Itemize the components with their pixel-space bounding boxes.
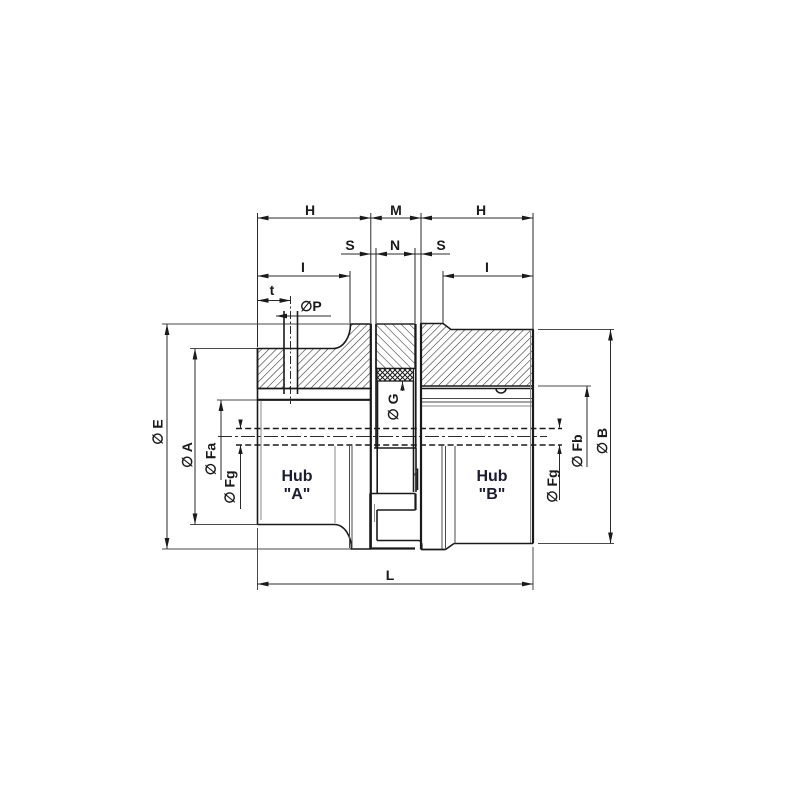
svg-text:Hub: Hub [476, 468, 507, 485]
svg-text:∅ Fg: ∅ Fg [222, 470, 238, 503]
svg-text:L: L [386, 567, 395, 583]
svg-text:"B": "B" [479, 486, 506, 503]
svg-text:∅ Fg: ∅ Fg [544, 469, 560, 502]
svg-text:∅ Fb: ∅ Fb [569, 434, 585, 467]
svg-text:M: M [390, 202, 402, 218]
svg-text:∅ E: ∅ E [150, 419, 166, 444]
svg-text:t: t [270, 282, 275, 298]
svg-text:S: S [436, 237, 445, 253]
svg-text:I: I [485, 259, 489, 275]
svg-text:∅ G: ∅ G [385, 393, 401, 420]
svg-text:∅ B: ∅ B [594, 428, 610, 454]
svg-text:∅ Fa: ∅ Fa [203, 443, 219, 476]
svg-text:∅P: ∅P [300, 298, 322, 314]
svg-text:S: S [345, 237, 354, 253]
svg-text:N: N [390, 237, 400, 253]
svg-text:"A": "A" [284, 486, 311, 503]
svg-text:H: H [476, 202, 486, 218]
svg-text:Hub: Hub [281, 468, 312, 485]
svg-text:I: I [301, 259, 305, 275]
svg-text:∅ A: ∅ A [179, 442, 195, 468]
svg-text:H: H [305, 202, 315, 218]
